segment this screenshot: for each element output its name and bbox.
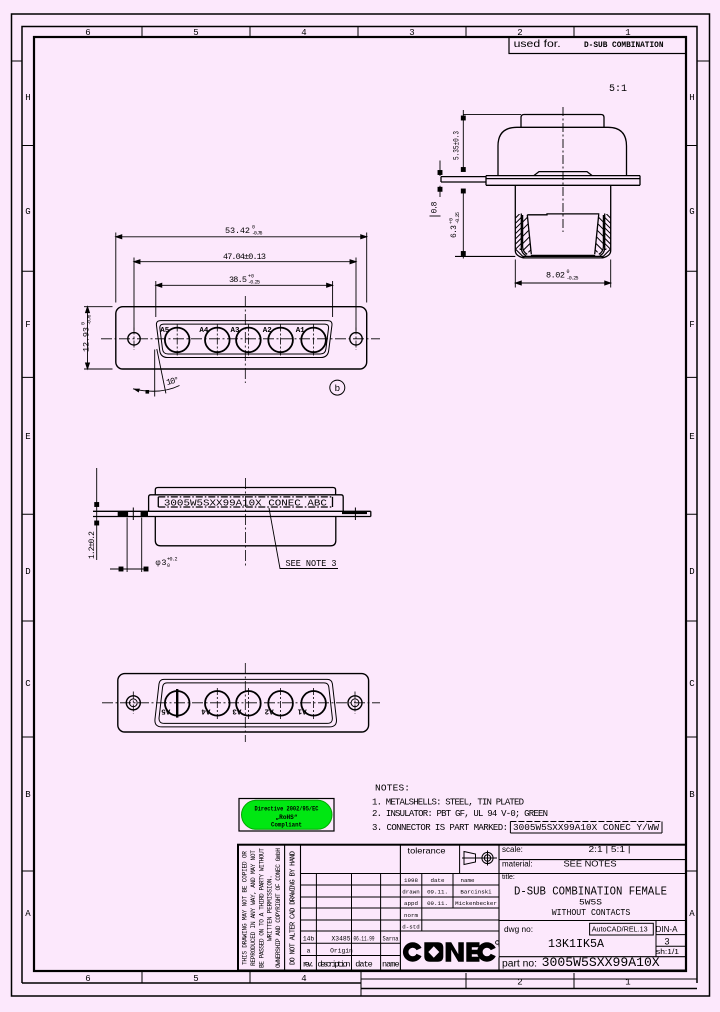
svg-text:13K1IK5A: 13K1IK5A [548,938,604,951]
svg-text:3005W5SXX99A10X: 3005W5SXX99A10X [542,955,660,970]
svg-text:A4: A4 [199,327,209,335]
svg-text:scale:: scale: [502,845,523,854]
svg-text:0.8: 0.8 [431,201,440,213]
svg-text:rev.: rev. [303,960,315,970]
svg-text:-0.25: -0.25 [248,280,260,286]
svg-text:-0.76: -0.76 [87,315,93,326]
svg-text:Sarna: Sarna [383,936,399,943]
svg-text:12.93: 12.93 [82,327,92,352]
svg-text:0: 0 [167,563,170,569]
svg-text:WRITTEN PERMISSION.: WRITTEN PERMISSION. [267,875,274,941]
svg-text:2:1 | 5:1 |: 2:1 | 5:1 | [589,845,631,854]
svg-text:-0.25: -0.25 [567,276,579,282]
svg-text:06.11.99: 06.11.99 [354,936,375,943]
svg-text:REPRODUCED IN ANY WAY, AND MAY: REPRODUCED IN ANY WAY, AND MAY NOT [250,850,257,966]
svg-text:D: D [689,567,694,577]
svg-text:THIS DRAWING MAY NOT BE COPIED: THIS DRAWING MAY NOT BE COPIED OR [242,851,249,965]
svg-text:H: H [25,93,30,103]
svg-text:WITHOUT CONTACTS: WITHOUT CONTACTS [552,907,631,918]
svg-text:C: C [25,679,31,689]
svg-text:A4: A4 [201,707,211,715]
svg-text:Barcinski: Barcinski [460,889,492,896]
svg-text:5W5S: 5W5S [579,898,602,907]
svg-text:date: date [431,877,445,884]
svg-text:part no:: part no: [502,959,537,970]
svg-text:+0.2: +0.2 [167,557,178,563]
svg-text:E: E [689,432,694,442]
svg-text:dwg no:: dwg no: [504,925,533,934]
svg-text:b: b [334,383,340,394]
svg-text:A2: A2 [264,707,274,715]
svg-text:-0.76: -0.76 [252,231,263,237]
svg-text:6: 6 [85,974,90,984]
svg-text:6.3: 6.3 [450,225,459,238]
svg-text:B: B [25,790,31,800]
svg-text:NOTES:: NOTES: [375,783,410,794]
svg-text:tolerance: tolerance [408,846,446,856]
svg-text:F: F [25,320,30,330]
svg-text:φ3: φ3 [156,558,167,568]
svg-text:3: 3 [409,28,414,38]
svg-text:09.11.: 09.11. [427,889,448,896]
svg-text:1: 1 [625,978,630,988]
svg-text:SEE NOTE 3: SEE NOTE 3 [286,559,337,569]
svg-text:F: F [689,320,694,330]
svg-text:3. CONNECTOR IS PART MARKED:: 3. CONNECTOR IS PART MARKED: [372,823,508,833]
svg-text:appd: appd [404,900,418,907]
svg-text:name: name [382,960,400,970]
svg-text:description: description [318,960,351,970]
svg-text:4: 4 [301,28,306,38]
svg-text:H: H [689,93,694,103]
svg-text:09.11.: 09.11. [427,900,448,907]
svg-text:3: 3 [664,937,669,947]
svg-text:d-std: d-std [402,924,419,931]
svg-text:D-SUB COMBINATION FEMALE: D-SUB COMBINATION FEMALE [514,885,667,899]
svg-text:1.2±0.2: 1.2±0.2 [88,531,97,559]
svg-text:+0: +0 [449,218,455,224]
svg-text:Mickenbecker: Mickenbecker [455,900,497,907]
svg-text:a: a [307,948,311,955]
svg-text:1998: 1998 [404,877,418,884]
svg-text:DIN-A: DIN-A [656,925,679,934]
svg-text:used for.: used for. [514,39,561,50]
svg-text:A: A [25,909,31,919]
svg-text:A3: A3 [231,327,241,335]
svg-text:OWNERSHIP AND COPYRIGHT OF CON: OWNERSHIP AND COPYRIGHT OF CONEC GmbH [275,848,282,968]
svg-text:53.42: 53.42 [225,226,250,236]
svg-text:A: A [689,909,695,919]
svg-text:A2: A2 [263,327,273,335]
svg-text:BE PASSED ON TO A THIRD PARTY: BE PASSED ON TO A THIRD PARTY WITHOUT [259,848,266,968]
svg-text:drawn: drawn [402,889,419,896]
svg-text:0: 0 [567,269,570,275]
svg-text:norm: norm [404,912,418,919]
svg-text:A5: A5 [161,707,171,715]
svg-text:5:1: 5:1 [609,84,627,95]
svg-text:A3: A3 [232,707,242,715]
svg-text:8.02: 8.02 [546,271,565,281]
svg-text:1. METALSHELLS: STEEL, TIN PLA: 1. METALSHELLS: STEEL, TIN PLATED [372,798,524,808]
svg-text:-0.25: -0.25 [455,212,461,224]
svg-text:DO NOT ALTER CAD DRAWING BY HA: DO NOT ALTER CAD DRAWING BY HAND [290,851,298,965]
svg-text:SEE NOTES: SEE NOTES [564,859,617,869]
svg-text:title:: title: [502,874,515,881]
svg-text:D: D [25,567,30,577]
svg-text:5.35±0.3: 5.35±0.3 [453,131,462,160]
svg-text:Directive 2002/95/EC: Directive 2002/95/EC [255,805,319,813]
svg-text:G: G [689,207,694,217]
svg-text:A1: A1 [297,707,307,715]
svg-text:38.5: 38.5 [229,275,247,285]
svg-text:A1: A1 [296,327,306,335]
svg-text:material:: material: [502,860,533,869]
svg-text:G: G [25,207,30,217]
svg-text:5: 5 [193,28,198,38]
svg-text:date: date [355,960,373,970]
svg-text:name: name [461,877,475,884]
svg-text:Compliant: Compliant [271,821,302,829]
svg-text:E: E [25,432,30,442]
svg-text:X3485: X3485 [332,936,351,943]
svg-text:47.04±0.13: 47.04±0.13 [223,252,266,262]
svg-text:A5: A5 [160,327,170,335]
svg-text:6: 6 [85,28,90,38]
svg-text:Origin: Origin [330,948,353,955]
svg-text:3005W5SXX99A10X CONEC Y/WW: 3005W5SXX99A10X CONEC Y/WW [513,823,660,833]
svg-text:2. INSULATOR: PBT GF, UL 94 V-: 2. INSULATOR: PBT GF, UL 94 V-0; GREEN [372,809,548,819]
svg-text:14b: 14b [303,936,315,943]
svg-text:4: 4 [301,974,306,984]
svg-text:C: C [689,679,695,689]
svg-text:5: 5 [193,974,198,984]
svg-text:B: B [689,790,695,800]
svg-text:2: 2 [517,978,522,988]
svg-text:D-SUB COMBINATION: D-SUB COMBINATION [584,40,664,50]
svg-text:AutoCAD/REL.13: AutoCAD/REL.13 [592,925,648,934]
